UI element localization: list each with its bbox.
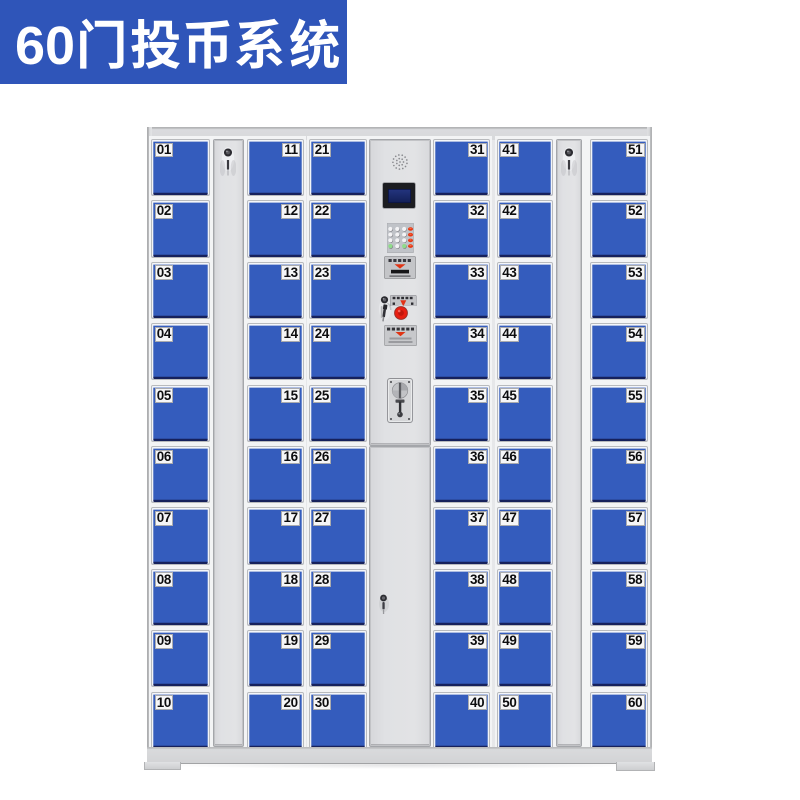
svg-text:60: 60 [15, 16, 75, 76]
